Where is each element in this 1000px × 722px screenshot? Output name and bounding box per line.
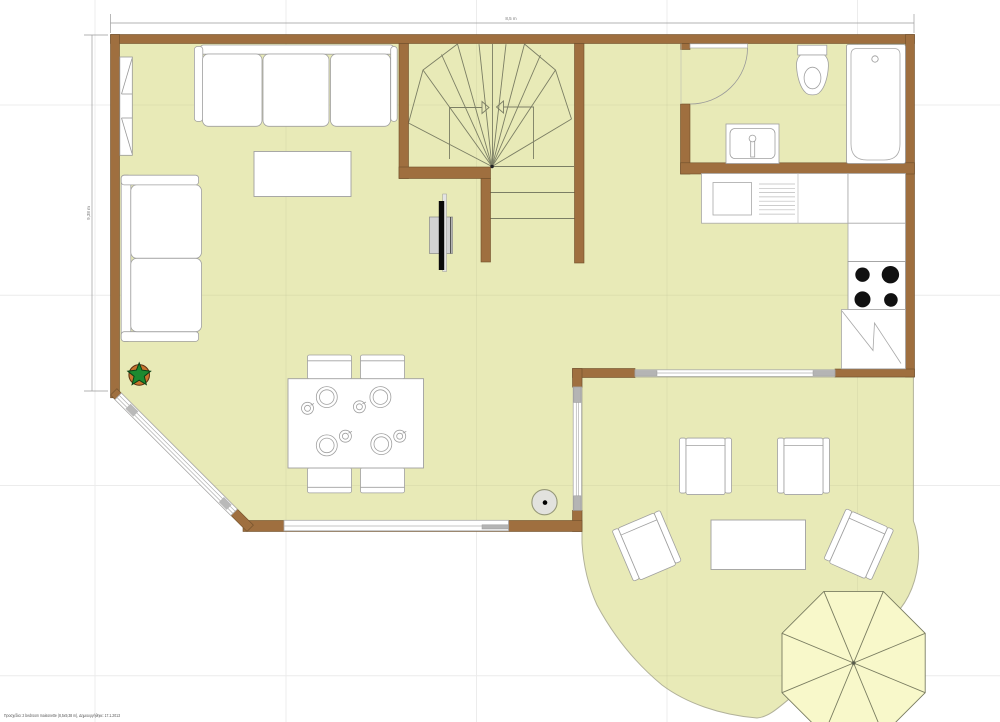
svg-text:8,5 m: 8,5 m xyxy=(505,16,517,21)
svg-text:Προσχέδιο: 2 bedroom maisonett: Προσχέδιο: 2 bedroom maisonette (8,5x9,3… xyxy=(4,713,121,718)
svg-text:9,38 m: 9,38 m xyxy=(86,206,91,220)
